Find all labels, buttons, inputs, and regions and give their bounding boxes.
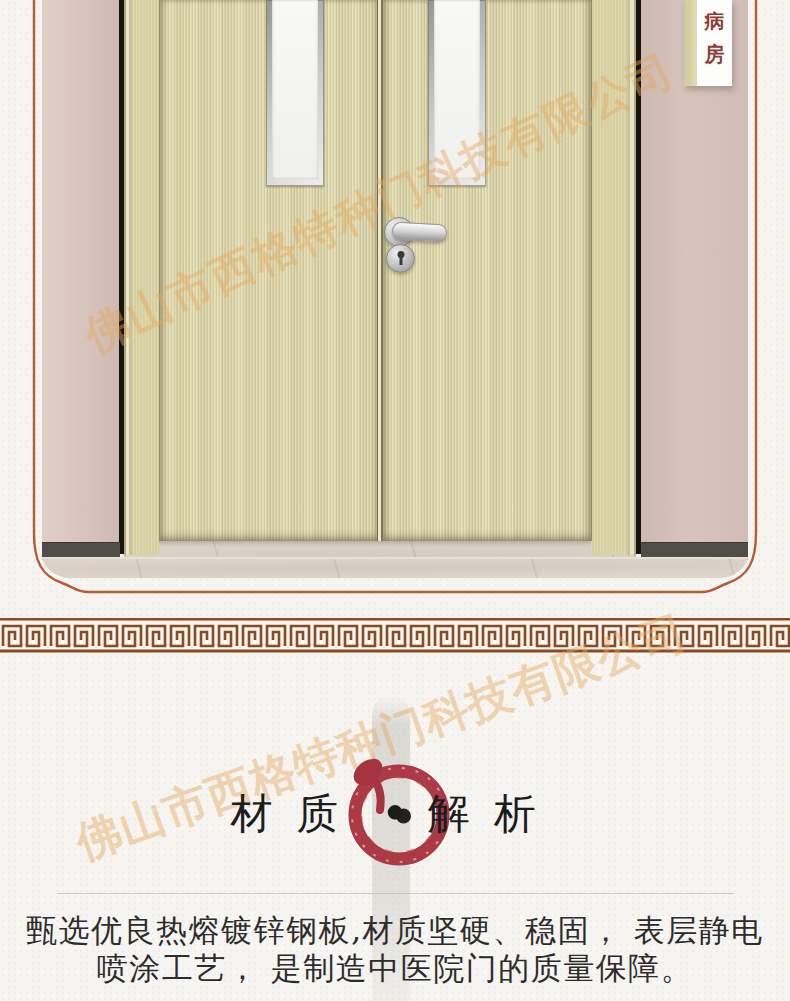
body-text-line-1: 甄选优良热熔镀锌钢板,材质坚硬、稳固， 表层静电 [0, 911, 790, 949]
section-title-left: 材质 [230, 791, 362, 837]
section-title: 材质 • 解析 [0, 791, 790, 837]
section-title-right: 解析 [428, 791, 560, 837]
ward-sign-edge [684, 0, 697, 86]
door-jamb-right [591, 0, 636, 555]
vision-panel-right [428, 0, 486, 186]
ward-sign-face: 病 房 [697, 0, 732, 86]
door-handle [392, 222, 448, 243]
glass-left [272, 0, 318, 179]
glass-right [434, 0, 480, 179]
ward-sign-char-1: 病 [705, 10, 725, 32]
ward-sign: 病 房 [684, 0, 732, 86]
door-jamb-left [124, 0, 159, 555]
door-leaf-right [383, 0, 592, 541]
body-text-line-2: 喷涂工艺， 是制造中医院门的质量保障。 [0, 949, 790, 987]
greek-key-border [0, 616, 790, 654]
section-divider [57, 893, 734, 894]
lock-cylinder [386, 244, 415, 273]
wall-left [42, 0, 120, 546]
ward-sign-char-2: 房 [705, 43, 725, 65]
vision-panel-left [266, 0, 324, 186]
door-meeting-gap [377, 0, 383, 541]
keyhole-icon [397, 251, 404, 258]
product-detail-page: 病 房 佛山市西格特种门科技有限公司 佛山市西格特种门科技有限公司 [0, 0, 790, 1001]
section-title-dot: • [380, 793, 410, 835]
hospital-door-photo: 病 房 佛山市西格特种门科技有限公司 [40, 0, 750, 578]
frame-gap-right [636, 0, 641, 554]
marble-floor [42, 557, 748, 578]
